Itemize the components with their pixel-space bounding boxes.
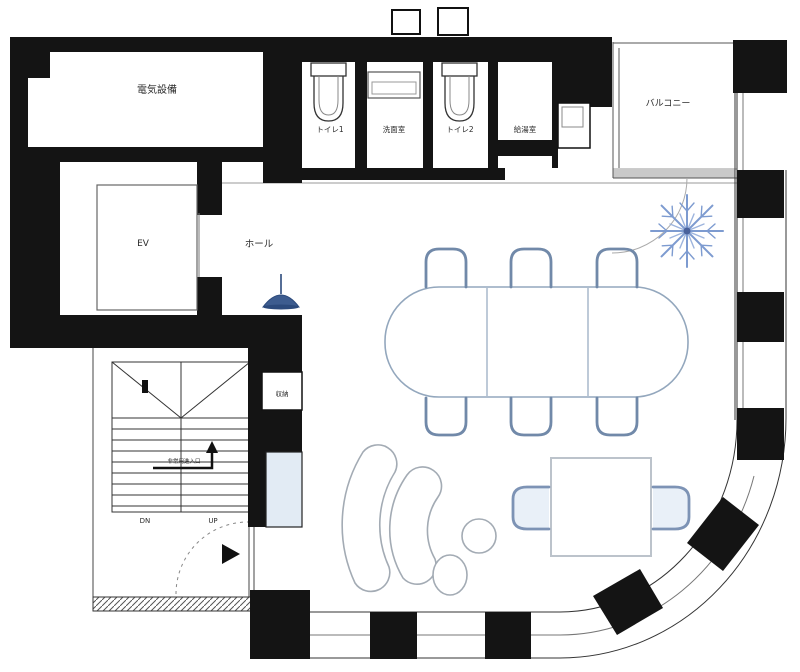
exit-direction-arrow — [222, 544, 240, 564]
staircase — [112, 362, 250, 512]
room-label-toilet2: トイレ2 — [446, 125, 473, 134]
vent-box-1 — [392, 10, 420, 34]
pouf-1 — [462, 519, 496, 553]
kitchenette-unit — [558, 103, 590, 148]
floor-plan-svg: 電気設備 トイレ1 洗面室 トイレ2 給湯室 バルコニー EV ホール 収納 非… — [0, 0, 800, 672]
room-label-balcony: バルコニー — [646, 98, 691, 109]
landing-exterior-wall — [93, 597, 254, 611]
room-label-electrical: 電気設備 — [137, 83, 177, 96]
room-label-storage: 収納 — [276, 389, 289, 398]
floor-plan-page: 電気設備 トイレ1 洗面室 トイレ2 給湯室 バルコニー EV ホール 収納 非… — [0, 0, 800, 672]
room-label-toilet1: トイレ1 — [316, 125, 343, 134]
sofa-1 — [342, 445, 397, 592]
stair-note-label: 非常用進入口 — [167, 457, 200, 465]
room-label-hall: ホール — [245, 239, 274, 250]
square-table — [551, 458, 651, 556]
pendant-icon — [263, 274, 299, 310]
pouf-2 — [433, 555, 467, 595]
stair-direction-mark — [142, 380, 148, 393]
kitchen-counter — [266, 452, 302, 527]
balcony-sill — [613, 169, 735, 178]
toilet-icon-2 — [442, 63, 477, 121]
door-swing-arc — [176, 522, 248, 594]
room-label-kitchenette: 給湯室 — [514, 124, 537, 134]
room-label-elevator: EV — [137, 239, 150, 249]
vent-box-2 — [438, 8, 468, 35]
balcony-walls — [613, 42, 737, 178]
window-band-mullions — [250, 170, 784, 659]
lounge-sofas — [342, 445, 496, 595]
toilet-icon-1 — [311, 63, 346, 121]
sink-counter — [368, 72, 420, 98]
plant-icon — [651, 195, 723, 267]
stair-up-label: UP — [208, 517, 217, 525]
room-label-washroom: 洗面室 — [383, 124, 406, 134]
conference-table — [385, 287, 688, 397]
stair-down-label: DN — [140, 517, 151, 525]
